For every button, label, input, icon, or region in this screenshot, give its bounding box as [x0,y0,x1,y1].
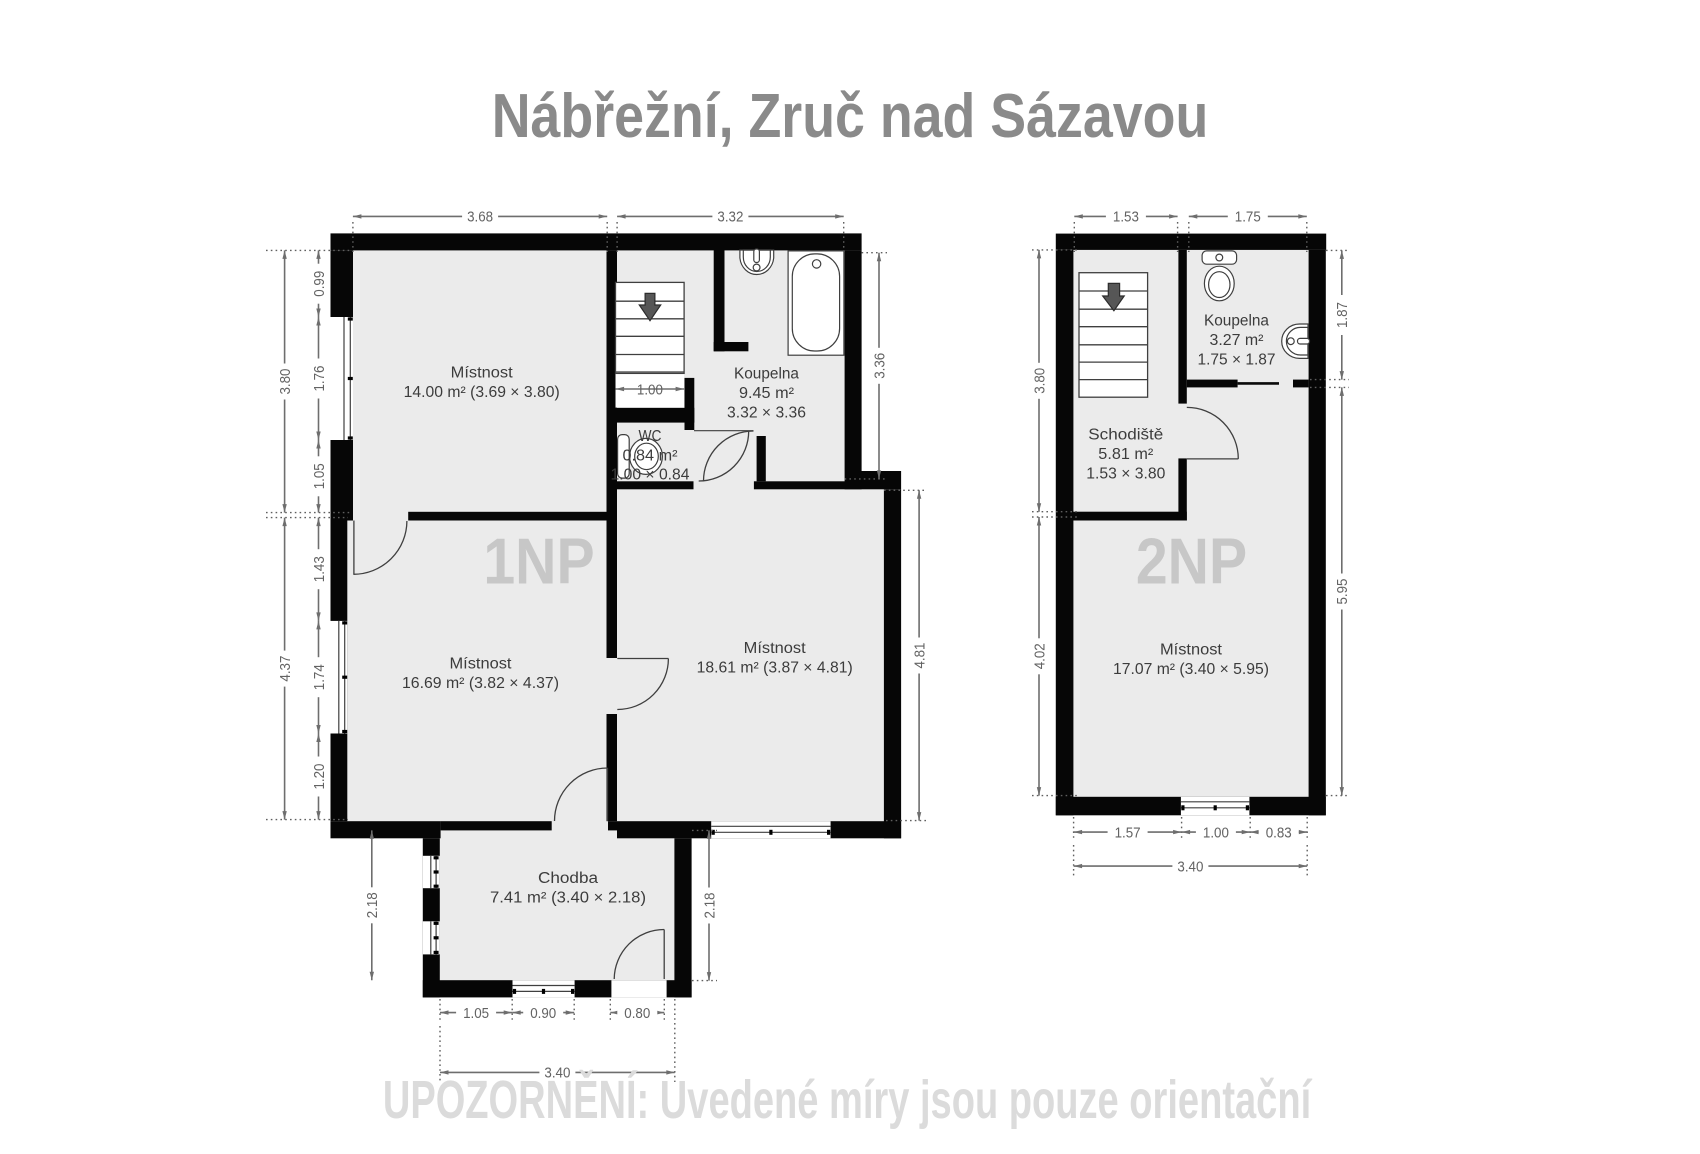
svg-text:Chodba: Chodba [538,870,598,887]
svg-text:1.76: 1.76 [312,366,328,392]
svg-text:14.00 m² (3.69 × 3.80): 14.00 m² (3.69 × 3.80) [404,384,560,401]
svg-text:Koupelna: Koupelna [734,366,799,383]
svg-text:1.53: 1.53 [1113,210,1139,226]
svg-text:5.81 m²: 5.81 m² [1098,446,1153,463]
svg-text:WC: WC [639,428,662,445]
svg-text:3.36: 3.36 [872,353,888,379]
svg-text:0.80: 0.80 [624,1006,650,1022]
svg-text:17.07 m² (3.40 × 5.95): 17.07 m² (3.40 × 5.95) [1113,661,1269,678]
svg-text:5.95: 5.95 [1335,579,1351,605]
svg-text:1.75 × 1.87: 1.75 × 1.87 [1198,351,1276,368]
svg-text:3.80: 3.80 [278,369,294,395]
svg-text:3.32: 3.32 [717,210,743,226]
svg-text:1.20: 1.20 [312,764,328,790]
svg-text:3.27 m²: 3.27 m² [1210,332,1264,349]
svg-text:Koupelna: Koupelna [1204,313,1269,330]
svg-text:1.00: 1.00 [637,382,663,398]
svg-text:3.40: 3.40 [1177,859,1203,875]
svg-text:UPOZORNĚNÍ: Uvedené míry jsou: UPOZORNĚNÍ: Uvedené míry jsou pouze orie… [383,1069,1313,1129]
svg-text:1.75: 1.75 [1235,210,1261,226]
svg-text:2.18: 2.18 [365,892,381,918]
svg-text:1.05: 1.05 [312,463,328,489]
svg-text:1.87: 1.87 [1335,302,1351,328]
svg-text:2.18: 2.18 [702,893,718,919]
svg-text:0.90: 0.90 [530,1006,556,1022]
svg-text:4.81: 4.81 [912,643,928,669]
svg-text:9.45 m²: 9.45 m² [739,385,794,402]
svg-text:18.61 m² (3.87 × 4.81): 18.61 m² (3.87 × 4.81) [697,659,853,676]
svg-text:0.84 m²: 0.84 m² [623,447,678,464]
svg-text:1.43: 1.43 [312,556,328,582]
svg-text:Schodiště: Schodiště [1088,427,1163,444]
svg-text:4.02: 4.02 [1032,643,1048,669]
svg-text:1.74: 1.74 [312,664,328,690]
svg-text:1.00 × 0.84: 1.00 × 0.84 [611,467,690,484]
svg-text:Místnost: Místnost [744,640,807,657]
svg-text:Nábřežní, Zruč nad Sázavou: Nábřežní, Zruč nad Sázavou [492,81,1209,151]
svg-text:2NP: 2NP [1136,525,1247,597]
svg-text:0.83: 0.83 [1266,825,1292,841]
svg-text:Místnost: Místnost [1160,642,1223,659]
svg-text:1NP: 1NP [483,525,594,597]
svg-text:1.05: 1.05 [463,1006,489,1022]
svg-text:16.69 m² (3.82 × 4.37): 16.69 m² (3.82 × 4.37) [402,675,559,692]
svg-text:3.80: 3.80 [1032,368,1048,394]
svg-text:Místnost: Místnost [451,364,514,381]
svg-text:3.32 × 3.36: 3.32 × 3.36 [727,404,806,421]
svg-text:3.68: 3.68 [467,210,493,226]
svg-text:4.37: 4.37 [278,656,294,682]
svg-text:1.53 × 3.80: 1.53 × 3.80 [1086,465,1165,482]
svg-text:Místnost: Místnost [450,656,513,673]
svg-text:1.00: 1.00 [1203,825,1229,841]
svg-text:7.41 m² (3.40 × 2.18): 7.41 m² (3.40 × 2.18) [490,889,646,906]
svg-text:1.57: 1.57 [1115,825,1141,841]
svg-text:0.99: 0.99 [312,271,328,297]
